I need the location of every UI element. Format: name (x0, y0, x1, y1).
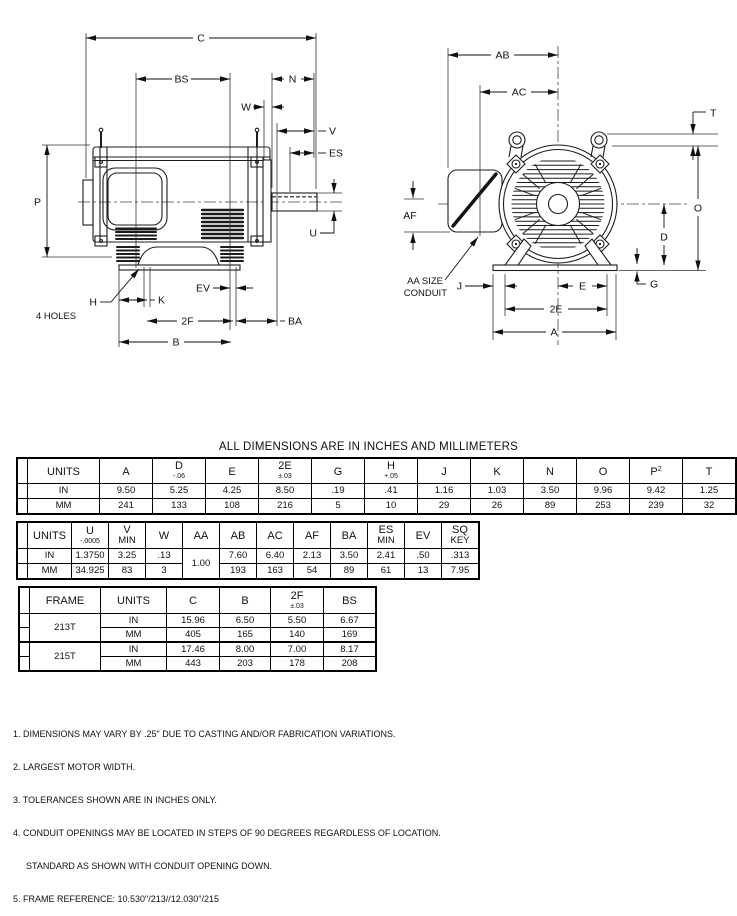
value-cell: 163 (257, 563, 294, 579)
value-cell: 6.40 (257, 548, 294, 563)
note-2: 2. LARGEST MOTOR WIDTH. (13, 762, 441, 773)
col-header-p: P2 (630, 458, 683, 483)
value-cell: 443 (167, 656, 220, 671)
value-cell: 9.96 (577, 483, 630, 498)
col-header-units: UNITS (101, 587, 167, 613)
value-cell: 405 (167, 627, 220, 642)
footnotes: 1. DIMENSIONS MAY VARY BY .25" DUE TO CA… (13, 707, 441, 916)
side-dimensions: C BS N W V ES U P H 4 HOLE (34, 33, 343, 349)
value-cell: 9.42 (630, 483, 683, 498)
col-header-ev: EV (405, 522, 442, 548)
spacer-cell (17, 498, 28, 514)
value-cell: 216 (259, 498, 312, 514)
value-cell: 89 (331, 563, 368, 579)
motor-front-face (493, 132, 617, 271)
value-cell: .313 (442, 548, 480, 563)
spacer-cell (19, 642, 30, 657)
label-aa-conduit: CONDUIT (404, 288, 447, 299)
value-cell: 7.00 (271, 642, 324, 657)
value-cell: 165 (220, 627, 271, 642)
value-cell: 1.3750 (72, 548, 109, 563)
value-cell: 10 (365, 498, 418, 514)
col-header-w: W (146, 522, 183, 548)
value-cell: 83 (109, 563, 146, 579)
units-cell: MM (28, 498, 100, 514)
value-cell: 5 (312, 498, 365, 514)
value-cell: 5.25 (153, 483, 206, 498)
label-4-holes: 4 HOLES (36, 311, 76, 322)
col-header-aa: AA (183, 522, 220, 548)
value-cell: 6.67 (324, 613, 377, 627)
motor-dimension-sheet: { "title": "ALL DIMENSIONS ARE IN INCHES… (0, 0, 737, 787)
value-cell: 34.925 (72, 563, 109, 579)
value-cell: 8.50 (259, 483, 312, 498)
col-header-sqkey: SQKEY (442, 522, 480, 548)
value-cell: 61 (368, 563, 405, 579)
value-cell: 32 (683, 498, 737, 514)
value-cell: 29 (418, 498, 471, 514)
base-plate-side (119, 265, 240, 270)
dim-label-2f: 2F (181, 316, 193, 328)
dim-label-ab: AB (495, 50, 509, 62)
col-header-units: UNITS (28, 458, 100, 483)
value-cell: 6.50 (220, 613, 271, 627)
front-view-drawing: AB AC T O D G AF AA SIZE CONDUIT (403, 46, 718, 345)
value-cell: 203 (220, 656, 271, 671)
value-cell: 169 (324, 627, 377, 642)
dim-label-v: V (329, 126, 336, 138)
col-header-units: UNITS (28, 522, 72, 548)
note-3: 3. TOLERANCES SHOWN ARE IN INCHES ONLY. (13, 795, 441, 806)
conduit-box (448, 170, 502, 232)
value-cell: 7.60 (220, 548, 257, 563)
value-cell: 140 (271, 627, 324, 642)
note-5: 5. FRAME REFERENCE: 10.530"/213//12.030"… (13, 894, 441, 905)
value-cell: 239 (630, 498, 683, 514)
shaft-hub (537, 183, 580, 226)
value-cell: 2.13 (294, 548, 331, 563)
value-cell: 8.17 (324, 642, 377, 657)
frame-cell-213t: 213T (30, 613, 101, 642)
col-header-bs: BS (324, 587, 377, 613)
value-cell: 3 (146, 563, 183, 579)
col-header-k: K (471, 458, 524, 483)
dim-label-bs: BS (174, 74, 188, 86)
side-view-drawing: C BS N W V ES U P H 4 HOLE (34, 33, 345, 349)
value-cell: .50 (405, 548, 442, 563)
value-cell: 253 (577, 498, 630, 514)
units-cell: IN (101, 642, 167, 657)
spacer-cell (19, 656, 30, 671)
units-cell: MM (101, 656, 167, 671)
units-cell: IN (28, 483, 100, 498)
motor-side-body (83, 128, 342, 270)
col-header-es: ESMIN (368, 522, 405, 548)
col-header-e: E (206, 458, 259, 483)
dim-label-es: ES (329, 148, 343, 160)
spacer-cell (19, 587, 30, 613)
col-header-o: O (577, 458, 630, 483)
spacer-cell (19, 627, 30, 642)
col-header-ab: AB (220, 522, 257, 548)
label-aa-size: AA SIZE (407, 276, 443, 287)
dim-label-af: AF (403, 210, 416, 222)
col-header-c: C (167, 587, 220, 613)
spacer-cell (17, 458, 28, 483)
value-cell: 3.25 (109, 548, 146, 563)
value-cell: 54 (294, 563, 331, 579)
note-1: 1. DIMENSIONS MAY VARY BY .25" DUE TO CA… (13, 729, 441, 740)
value-cell: 4.25 (206, 483, 259, 498)
col-header-n: N (524, 458, 577, 483)
value-cell: .13 (146, 548, 183, 563)
value-cell: 133 (153, 498, 206, 514)
frame-cell-215t: 215T (30, 642, 101, 671)
spacer-cell (17, 483, 28, 498)
spacer-cell (17, 563, 28, 579)
col-header-af: AF (294, 522, 331, 548)
units-cell: MM (101, 627, 167, 642)
dim-label-c: C (197, 33, 205, 45)
col-header-t: T (683, 458, 737, 483)
value-cell: 2.41 (368, 548, 405, 563)
dim-label-h: H (89, 297, 97, 309)
dimension-table-1: UNITS A D-.06 E 2E±.03 G H+.05 J K N O P… (16, 457, 737, 515)
note-4-continued: STANDARD AS SHOWN WITH CONDUIT OPENING D… (13, 861, 441, 872)
note-4: 4. CONDUIT OPENINGS MAY BE LOCATED IN ST… (13, 828, 441, 839)
dim-label-b: B (172, 337, 179, 349)
value-cell: 26 (471, 498, 524, 514)
dimension-table-2: UNITS U-.0005 VMIN W AA AB AC AF BA ESMI… (16, 521, 480, 580)
value-cell: 89 (524, 498, 577, 514)
col-header-h: H+.05 (365, 458, 418, 483)
dim-label-ba: BA (288, 316, 302, 328)
value-cell: .41 (365, 483, 418, 498)
col-header-2f: 2F±.03 (271, 587, 324, 613)
value-cell: 178 (271, 656, 324, 671)
value-cell: 15.96 (167, 613, 220, 627)
dim-label-2e: 2E (550, 304, 563, 316)
col-header-j: J (418, 458, 471, 483)
col-header-v: VMIN (109, 522, 146, 548)
value-cell: 7.95 (442, 563, 480, 579)
dim-label-g: G (650, 279, 658, 291)
cooling-fins (116, 210, 243, 261)
value-cell: .19 (312, 483, 365, 498)
units-cell: MM (28, 563, 72, 579)
value-cell: 193 (220, 563, 257, 579)
col-header-frame: FRAME (30, 587, 101, 613)
value-cell: 5.50 (271, 613, 324, 627)
base-plate-front (493, 265, 617, 271)
value-cell: 3.50 (331, 548, 368, 563)
col-header-d: D-.06 (153, 458, 206, 483)
dim-label-n: N (289, 74, 297, 86)
col-header-2e: 2E±.03 (259, 458, 312, 483)
col-header-ba: BA (331, 522, 368, 548)
dim-label-j: J (457, 281, 462, 293)
sheet-title: ALL DIMENSIONS ARE IN INCHES AND MILLIME… (0, 441, 737, 453)
value-cell: 1.25 (683, 483, 737, 498)
spacer-cell (19, 613, 30, 627)
spacer-cell (17, 548, 28, 563)
dim-label-e: E (579, 281, 586, 293)
dim-label-k: K (158, 295, 165, 307)
spacer-cell (17, 522, 28, 548)
dim-label-ev: EV (196, 283, 210, 295)
dim-label-ac: AC (512, 87, 527, 99)
mounting-foot (138, 247, 219, 265)
frame-table: FRAME UNITS C B 2F±.03 BS 213T IN 15.96 … (18, 586, 377, 672)
units-cell: IN (28, 548, 72, 563)
value-cell: 108 (206, 498, 259, 514)
dim-label-u: U (309, 228, 317, 240)
col-header-b: B (220, 587, 271, 613)
value-cell: 1.03 (471, 483, 524, 498)
dim-label-p: P (34, 197, 41, 209)
dim-label-a: A (550, 327, 557, 339)
value-cell: 241 (100, 498, 153, 514)
dim-label-w: W (241, 102, 251, 114)
dim-label-d: D (660, 232, 668, 244)
col-header-a: A (100, 458, 153, 483)
value-cell: 1.16 (418, 483, 471, 498)
value-cell: 208 (324, 656, 377, 671)
value-cell: 9.50 (100, 483, 153, 498)
value-cell: 17.46 (167, 642, 220, 657)
col-header-g: G (312, 458, 365, 483)
value-cell: 8.00 (220, 642, 271, 657)
col-header-u: U-.0005 (72, 522, 109, 548)
units-cell: IN (101, 613, 167, 627)
value-cell: 13 (405, 563, 442, 579)
dim-label-o: O (694, 203, 702, 215)
dim-label-t: T (710, 108, 717, 120)
value-cell-aa: 1.00 (183, 548, 220, 579)
junction-box (103, 168, 167, 230)
dimension-drawing: C BS N W V ES U P H 4 HOLE (0, 0, 737, 400)
value-cell: 3.50 (524, 483, 577, 498)
col-header-ac: AC (257, 522, 294, 548)
